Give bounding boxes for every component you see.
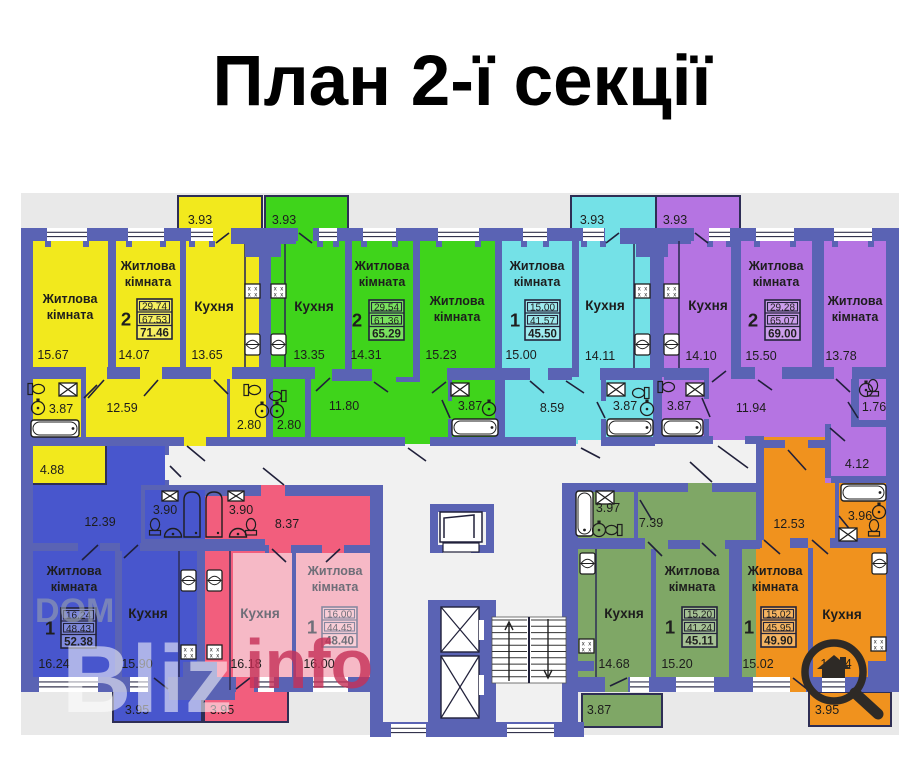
svg-text:кімната: кімната — [47, 308, 95, 322]
svg-text:кімната: кімната — [359, 275, 407, 289]
svg-text:Кухня: Кухня — [194, 299, 233, 314]
svg-text:x: x — [280, 293, 283, 299]
svg-text:x: x — [582, 648, 585, 654]
svg-text:45.11: 45.11 — [685, 635, 714, 647]
svg-text:15.20: 15.20 — [661, 657, 692, 671]
svg-text:x: x — [673, 293, 676, 299]
svg-text:3.87: 3.87 — [587, 703, 611, 717]
svg-text:15.00: 15.00 — [505, 348, 536, 362]
svg-text:Кухня: Кухня — [294, 299, 333, 314]
svg-text:14.31: 14.31 — [350, 348, 381, 362]
svg-text:13.78: 13.78 — [825, 349, 856, 363]
svg-text:1: 1 — [665, 617, 675, 638]
svg-text:61.36: 61.36 — [374, 316, 399, 327]
svg-text:Кухня: Кухня — [585, 298, 624, 313]
svg-text:1.76: 1.76 — [862, 400, 886, 414]
svg-text:14.07: 14.07 — [118, 348, 149, 362]
svg-text:3.95: 3.95 — [815, 703, 839, 717]
svg-text:Житлова: Житлова — [46, 564, 103, 578]
svg-text:15.50: 15.50 — [745, 349, 776, 363]
svg-text:x: x — [638, 293, 641, 299]
svg-text:67.53: 67.53 — [142, 315, 167, 326]
svg-text:Житлова: Житлова — [747, 564, 804, 578]
svg-text:4.88: 4.88 — [40, 463, 64, 477]
svg-text:15.67: 15.67 — [37, 348, 68, 362]
svg-text:3.93: 3.93 — [580, 213, 604, 227]
svg-text:Житлова: Житлова — [354, 259, 411, 273]
svg-text:3.87: 3.87 — [613, 399, 637, 413]
svg-text:3.93: 3.93 — [272, 213, 296, 227]
svg-text:12.53: 12.53 — [773, 517, 804, 531]
svg-text:Житлова: Житлова — [748, 259, 805, 273]
svg-text:План 2-ї секції: План 2-ї секції — [213, 42, 714, 121]
svg-text:x: x — [644, 293, 647, 299]
svg-text:15.02: 15.02 — [742, 657, 773, 671]
svg-text:Житлова: Житлова — [42, 292, 99, 306]
svg-text:3.87: 3.87 — [667, 399, 691, 413]
svg-text:41.57: 41.57 — [530, 316, 555, 327]
svg-text:Кухня: Кухня — [822, 607, 861, 622]
svg-text:13.35: 13.35 — [293, 348, 324, 362]
svg-text:1: 1 — [744, 617, 754, 638]
svg-text:13.65: 13.65 — [191, 348, 222, 362]
svg-text:29.54: 29.54 — [374, 303, 399, 314]
svg-text:2: 2 — [748, 310, 758, 331]
svg-text:14.68: 14.68 — [598, 657, 629, 671]
svg-text:кімната: кімната — [312, 580, 360, 594]
svg-text:29.74: 29.74 — [142, 302, 167, 313]
svg-text:3.90: 3.90 — [153, 503, 177, 517]
svg-text:3.90: 3.90 — [229, 503, 253, 517]
svg-text:Житлова: Житлова — [429, 294, 486, 308]
svg-text:кімната: кімната — [514, 275, 562, 289]
svg-text:кімната: кімната — [752, 580, 800, 594]
svg-text:Житлова: Житлова — [509, 259, 566, 273]
svg-text:кімната: кімната — [669, 580, 717, 594]
svg-text:кімната: кімната — [753, 275, 801, 289]
svg-text:3.97: 3.97 — [596, 501, 620, 515]
svg-text:Житлова: Житлова — [664, 564, 721, 578]
svg-text:Житлова: Житлова — [307, 564, 364, 578]
svg-text:7.39: 7.39 — [639, 516, 663, 530]
svg-text:4.12: 4.12 — [845, 457, 869, 471]
svg-text:2: 2 — [121, 309, 131, 330]
svg-text:41.24: 41.24 — [687, 623, 712, 634]
svg-text:3.93: 3.93 — [188, 213, 212, 227]
svg-text:14.11: 14.11 — [585, 349, 615, 363]
svg-text:3.87: 3.87 — [49, 402, 73, 416]
svg-text:x: x — [254, 293, 257, 299]
svg-text:45.95: 45.95 — [766, 623, 791, 634]
svg-text:DOM: DOM — [35, 592, 114, 630]
svg-text:кімната: кімната — [434, 310, 482, 324]
svg-text:65.07: 65.07 — [770, 316, 795, 327]
svg-text:8.37: 8.37 — [275, 517, 299, 531]
svg-text:11.94: 11.94 — [736, 401, 766, 415]
svg-text:Житлова: Житлова — [120, 259, 177, 273]
svg-text:15.02: 15.02 — [766, 610, 791, 621]
svg-text:65.29: 65.29 — [372, 328, 401, 340]
svg-text:кімната: кімната — [832, 310, 880, 324]
svg-text:15.23: 15.23 — [425, 348, 456, 362]
svg-text:15.20: 15.20 — [687, 610, 712, 621]
svg-text:2: 2 — [352, 310, 362, 331]
svg-text:29.28: 29.28 — [770, 303, 795, 314]
svg-text:3.96: 3.96 — [848, 509, 872, 523]
svg-text:69.00: 69.00 — [768, 328, 797, 340]
svg-text:16.00: 16.00 — [327, 610, 352, 621]
svg-text:15.00: 15.00 — [530, 303, 555, 314]
svg-text:Кухня: Кухня — [688, 298, 727, 313]
svg-text:3.87: 3.87 — [458, 399, 482, 413]
svg-text:x: x — [874, 646, 877, 652]
svg-text:x: x — [248, 293, 251, 299]
svg-text:11.80: 11.80 — [329, 399, 359, 413]
svg-text:Bliz: Bliz — [62, 626, 233, 733]
svg-text:Кухня: Кухня — [604, 606, 643, 621]
svg-text:Житлова: Житлова — [827, 294, 884, 308]
svg-text:кімната: кімната — [125, 275, 173, 289]
svg-text:x: x — [274, 293, 277, 299]
svg-text:info: info — [245, 625, 373, 703]
svg-text:x: x — [588, 648, 591, 654]
svg-text:2.80: 2.80 — [237, 418, 261, 432]
svg-text:x: x — [880, 646, 883, 652]
svg-text:14.10: 14.10 — [685, 349, 716, 363]
svg-text:2.80: 2.80 — [277, 418, 301, 432]
svg-text:Кухня: Кухня — [128, 606, 167, 621]
svg-text:3.93: 3.93 — [663, 213, 687, 227]
svg-text:8.59: 8.59 — [540, 401, 564, 415]
svg-text:Кухня: Кухня — [240, 606, 279, 621]
svg-text:71.46: 71.46 — [140, 327, 169, 339]
svg-text:49.90: 49.90 — [764, 635, 793, 647]
svg-text:x: x — [667, 293, 670, 299]
svg-text:1: 1 — [510, 310, 520, 331]
svg-text:12.39: 12.39 — [84, 515, 115, 529]
svg-text:12.59: 12.59 — [106, 401, 137, 415]
svg-text:45.50: 45.50 — [528, 328, 557, 340]
